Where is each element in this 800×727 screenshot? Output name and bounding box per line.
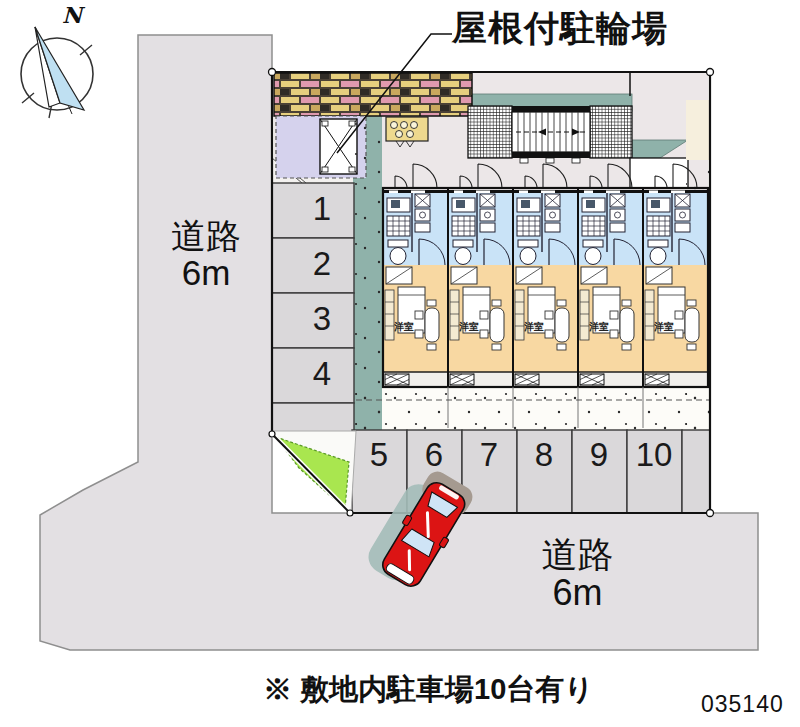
stall-number-9: 9 xyxy=(577,438,621,473)
compass-icon xyxy=(21,27,93,118)
unit-room-label: 洋室 xyxy=(586,322,612,333)
footer-note: ※ 敷地内駐車場10台有り xyxy=(263,674,594,704)
stall-number-6: 6 xyxy=(412,438,456,473)
stall-number-3: 3 xyxy=(300,302,344,337)
stall-number-1: 1 xyxy=(300,192,344,227)
stall-number-10: 10 xyxy=(632,438,676,473)
bottom-road-name: 道路 xyxy=(505,536,650,574)
site-plan: N 屋根付駐輪場 道路 6m 道路 6m 1 2 3 4 5 6 7 8 9 1… xyxy=(0,0,800,727)
plan-number: 035140 xyxy=(701,692,784,716)
unit-balcony xyxy=(578,372,643,387)
staircase xyxy=(468,106,632,163)
bottom-road-label: 道路 6m xyxy=(505,536,650,612)
left-road-width: 6m xyxy=(136,255,276,292)
stall-number-8: 8 xyxy=(522,438,566,473)
site-plan-drawing xyxy=(0,0,800,727)
unit-room-label: 洋室 xyxy=(651,322,677,333)
entry-alcove xyxy=(630,158,688,188)
unit-plan xyxy=(643,190,708,372)
bicycle-parking-label: 屋根付駐輪場 xyxy=(452,10,668,47)
gravel-top-right xyxy=(686,100,710,160)
unit-plan xyxy=(448,190,513,372)
bottom-road-width: 6m xyxy=(505,574,650,612)
unit-plan xyxy=(383,190,448,372)
unit-balcony xyxy=(643,372,708,387)
bicycle-rack xyxy=(320,119,357,174)
left-road-label: 道路 6m xyxy=(136,218,276,292)
unit-plan xyxy=(578,190,643,372)
unit-balcony xyxy=(448,372,513,387)
unit-balcony xyxy=(513,372,578,387)
unit-balcony xyxy=(383,372,448,387)
unit-room-label: 洋室 xyxy=(391,322,417,333)
compass-north-label: N xyxy=(62,2,82,28)
stall-number-4: 4 xyxy=(300,357,344,392)
bicycle-parking-roof xyxy=(274,73,472,116)
stall-number-5: 5 xyxy=(357,438,401,473)
stall-number-2: 2 xyxy=(300,247,344,282)
left-road-name: 道路 xyxy=(136,218,276,255)
unit-plan xyxy=(513,190,578,372)
unit-room-label: 洋室 xyxy=(521,322,547,333)
unit-room-label: 洋室 xyxy=(456,322,482,333)
stall-number-7: 7 xyxy=(467,438,511,473)
gravel-bottom xyxy=(356,387,710,430)
gravel-left xyxy=(354,112,382,430)
